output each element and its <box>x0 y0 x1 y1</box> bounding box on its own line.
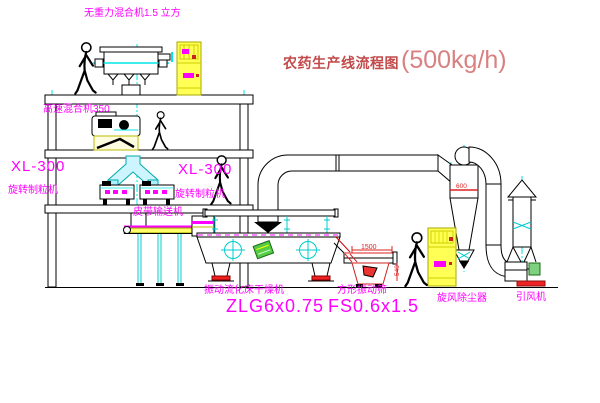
drawing-title: 农药生产线流程图 (500kg/h) <box>283 46 507 75</box>
label-dryer-model: ZLG6x0.75 <box>226 297 324 315</box>
label-granulator-right-model: XL-300 <box>178 162 232 177</box>
label-granulator-right-name: 旋转制粒机 <box>175 190 225 200</box>
worker-figure-2 <box>152 112 167 150</box>
induced-draft-fan <box>505 262 545 286</box>
vibrating-sieve: 1500 540 <box>344 244 401 287</box>
label-cyclone: 旋风除尘器 <box>437 294 487 304</box>
title-text: 农药生产线流程图 <box>283 53 399 73</box>
control-cabinet-top <box>177 42 201 95</box>
label-high-speed-mixer: 高速混合机350 <box>43 105 110 115</box>
sieve-height-dimension: 540 <box>394 265 401 276</box>
granulator-left <box>100 180 134 205</box>
control-cabinet-right <box>428 228 456 286</box>
label-gravity-mixer: 无重力混合机1.5 立方 <box>84 9 181 19</box>
label-dryer-name: 振动流化床干燥机 <box>204 286 284 296</box>
label-fan: 引风机 <box>516 293 546 303</box>
label-sieve-model: FS0.6x1.5 <box>328 297 419 315</box>
label-sieve-name: 方形振动筛 <box>337 286 387 296</box>
high-speed-mixer <box>92 112 140 150</box>
title-capacity: (500kg/h) <box>401 46 507 75</box>
label-granulator-left-name: 旋转制粒机 <box>8 186 58 196</box>
sieve-length-dimension: 1500 <box>361 244 377 251</box>
label-granulator-left-model: XL-300 <box>11 159 65 174</box>
granulator-right <box>140 180 174 205</box>
dryer-exhaust-duct <box>254 155 452 233</box>
cyclone-dimension: 600 <box>456 183 467 190</box>
process-flow-screenshot: 600 <box>0 0 600 403</box>
worker-figure-1 <box>75 43 95 94</box>
gravity-mixer <box>93 47 172 95</box>
label-belt-conveyor: 皮带输送机 <box>133 208 183 218</box>
belt-conveyor <box>124 213 200 286</box>
worker-figure-4 <box>405 233 426 286</box>
